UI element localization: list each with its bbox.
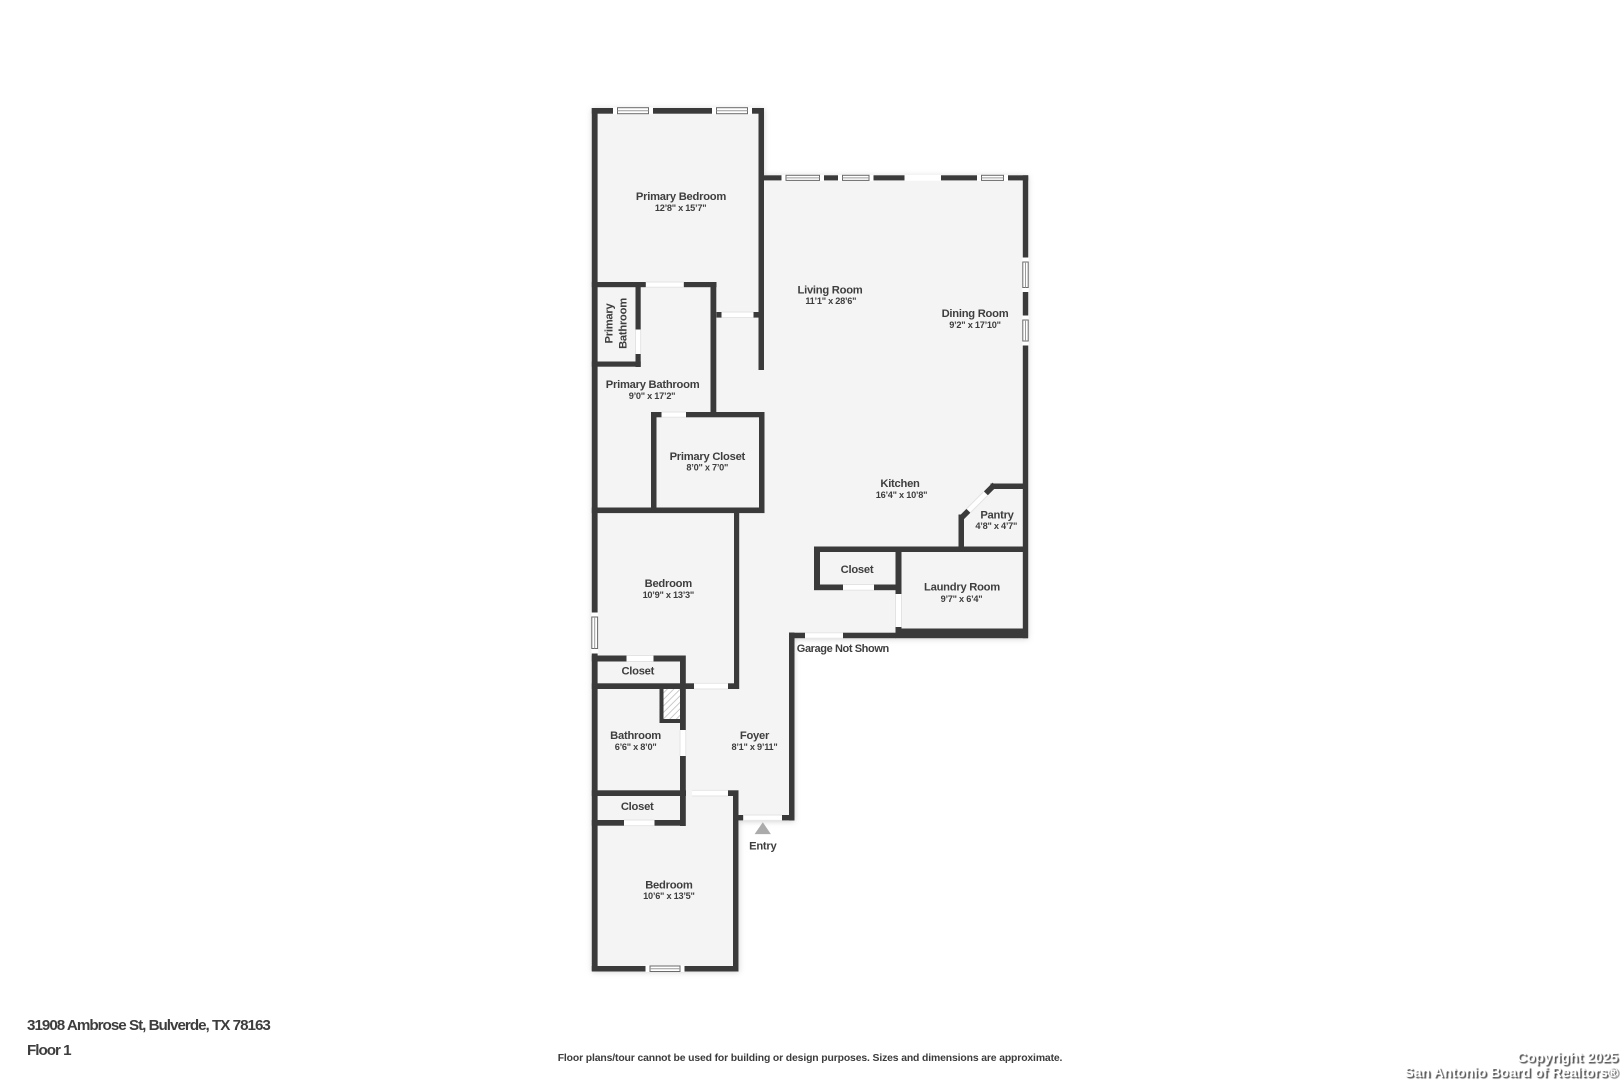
svg-text:Bedroom: Bedroom	[645, 879, 693, 891]
svg-text:16’4" x 10’8": 16’4" x 10’8"	[876, 490, 927, 500]
svg-text:9’0" x 17’2": 9’0" x 17’2"	[629, 391, 676, 401]
svg-text:Pantry: Pantry	[980, 510, 1014, 522]
svg-text:Primary Bathroom: Primary Bathroom	[606, 379, 700, 391]
svg-text:Dining Room: Dining Room	[942, 308, 1009, 320]
svg-text:8’0" x 7’0": 8’0" x 7’0"	[686, 463, 728, 473]
svg-text:Entry: Entry	[749, 841, 777, 853]
svg-text:Bathroom: Bathroom	[610, 730, 661, 742]
svg-text:Laundry Room: Laundry Room	[924, 581, 1000, 593]
svg-text:Closet: Closet	[841, 564, 874, 576]
svg-text:Primary: Primary	[603, 303, 615, 344]
svg-text:10’9" x 13’3": 10’9" x 13’3"	[643, 590, 694, 600]
svg-text:10’6" x 13’5": 10’6" x 13’5"	[643, 891, 694, 901]
svg-text:Foyer: Foyer	[740, 730, 770, 742]
svg-text:11’1" x 28’6": 11’1" x 28’6"	[805, 296, 856, 306]
svg-text:Bathroom: Bathroom	[617, 298, 629, 349]
svg-text:Garage Not Shown: Garage Not Shown	[797, 643, 890, 655]
svg-text:Primary Closet: Primary Closet	[670, 451, 746, 463]
svg-text:9’2" x 17’10": 9’2" x 17’10"	[949, 320, 1000, 330]
svg-text:4’8" x 4’7": 4’8" x 4’7"	[975, 521, 1017, 531]
svg-text:12’8" x 15’7": 12’8" x 15’7"	[655, 203, 706, 213]
svg-text:6’6" x 8’0": 6’6" x 8’0"	[615, 742, 657, 752]
svg-text:8’1" x 9’11": 8’1" x 9’11"	[731, 742, 777, 752]
svg-text:Closet: Closet	[621, 665, 654, 677]
svg-text:Living Room: Living Room	[798, 284, 863, 296]
svg-text:Primary Bedroom: Primary Bedroom	[636, 191, 726, 203]
svg-text:9’7" x 6’4": 9’7" x 6’4"	[941, 594, 983, 604]
svg-text:Kitchen: Kitchen	[880, 478, 920, 490]
svg-text:Closet: Closet	[621, 801, 654, 813]
svg-text:Bedroom: Bedroom	[645, 578, 693, 590]
